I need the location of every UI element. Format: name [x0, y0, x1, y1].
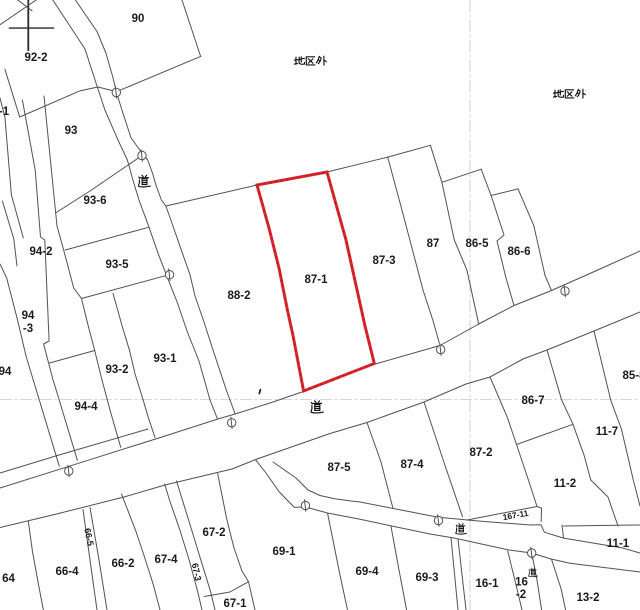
svg-text:66-2: 66-2	[111, 558, 134, 570]
svg-text:86-7: 86-7	[521, 395, 544, 407]
svg-text:67-4: 67-4	[154, 554, 178, 566]
svg-text:93: 93	[65, 125, 78, 137]
svg-text:-2: -2	[516, 589, 526, 601]
svg-text:-1: -1	[0, 106, 10, 118]
svg-text:87-5: 87-5	[327, 462, 351, 474]
svg-text:11-7: 11-7	[596, 426, 618, 438]
svg-text:13-2: 13-2	[576, 592, 599, 604]
svg-text:94-2: 94-2	[29, 246, 52, 258]
svg-text:93-2: 93-2	[105, 364, 128, 376]
svg-text:87-4: 87-4	[400, 459, 424, 471]
svg-text:94-4: 94-4	[74, 401, 98, 413]
svg-text:93-6: 93-6	[83, 195, 106, 207]
svg-text:93-1: 93-1	[153, 353, 177, 365]
svg-text:66-4: 66-4	[55, 566, 79, 578]
svg-text:-3: -3	[23, 323, 33, 335]
svg-text:87-1: 87-1	[304, 274, 328, 286]
svg-text:11-2: 11-2	[554, 478, 576, 490]
svg-text:11-1: 11-1	[607, 538, 630, 550]
svg-text:64: 64	[2, 573, 15, 585]
svg-text:87-2: 87-2	[469, 447, 492, 459]
svg-text:67-2: 67-2	[202, 527, 225, 539]
svg-text:93-5: 93-5	[105, 259, 129, 271]
svg-text:94: 94	[22, 310, 35, 322]
svg-text:87-3: 87-3	[372, 255, 395, 267]
svg-text:69-1: 69-1	[272, 546, 296, 558]
svg-text:69-3: 69-3	[415, 572, 438, 584]
svg-text:88-2: 88-2	[227, 290, 250, 302]
svg-text:86-6: 86-6	[507, 246, 530, 258]
svg-text:94: 94	[0, 366, 12, 378]
svg-text:67-1: 67-1	[223, 598, 247, 610]
svg-text:87: 87	[427, 238, 440, 250]
svg-text:92-2: 92-2	[24, 52, 47, 64]
svg-text:90: 90	[132, 13, 145, 25]
svg-text:69-4: 69-4	[355, 566, 379, 578]
svg-text:16-1: 16-1	[475, 578, 499, 590]
svg-text:16: 16	[515, 577, 528, 589]
svg-text:86-5: 86-5	[465, 238, 489, 250]
svg-text:85-8: 85-8	[622, 370, 640, 382]
